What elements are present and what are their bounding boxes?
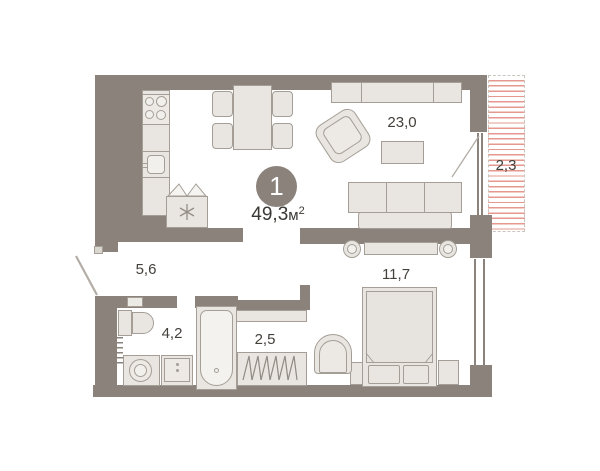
unit-number-badge: 1 [256, 166, 297, 207]
room-label-wardrobe: 2,5 [243, 331, 287, 349]
room-label-bathroom: 4,2 [150, 325, 194, 343]
total-area-value: 49,3 [251, 204, 288, 225]
total-area-label: 49,3м2 [236, 204, 320, 228]
total-area-unit: м [288, 207, 298, 224]
floor-plan: 23,0 2,3 5,6 4,2 2,5 11,7 1 49,3м2 [0, 0, 600, 471]
total-area-sup: 2 [299, 205, 305, 217]
snowflake-icon [180, 204, 194, 220]
room-label-bedroom: 11,7 [372, 266, 420, 284]
detail-overlay [0, 0, 600, 471]
room-label-hallway: 5,6 [124, 261, 168, 279]
entrance-door-leaf [76, 256, 97, 295]
balcony-door-leaf [452, 136, 479, 177]
room-label-living: 23,0 [378, 114, 426, 132]
blanket-fold-lines [366, 353, 433, 363]
hangers-icon [243, 356, 297, 380]
room-label-balcony: 2,3 [487, 157, 525, 175]
fridge-door-flaps [168, 184, 206, 196]
